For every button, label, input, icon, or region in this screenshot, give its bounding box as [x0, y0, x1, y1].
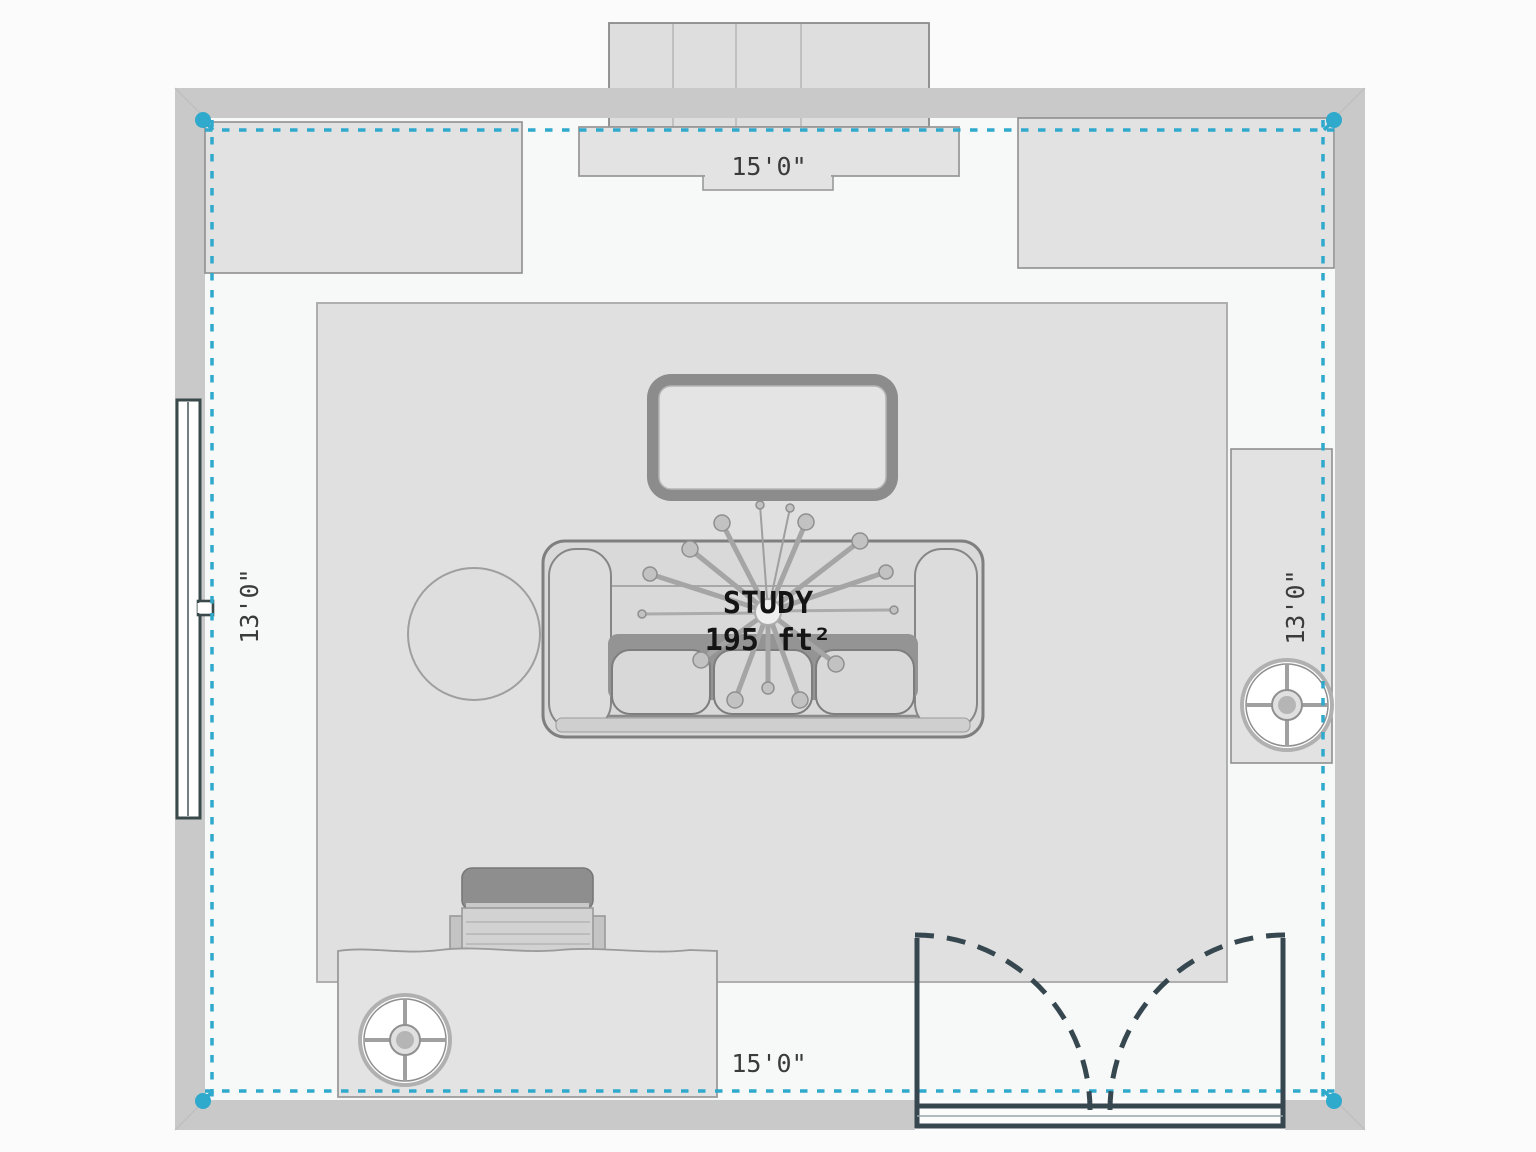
cabinet-top-right-icon[interactable]	[1018, 118, 1334, 268]
office-chair-icon[interactable]	[450, 868, 605, 952]
dimension-label-right: 13'0"	[1281, 569, 1310, 644]
corner-handle-top-right[interactable]	[1326, 112, 1342, 128]
corner-handle-bottom-left[interactable]	[195, 1093, 211, 1109]
dimension-label-top: 15'0"	[731, 152, 806, 181]
wall-bottom-left-segment[interactable]	[175, 1100, 915, 1130]
corner-handle-bottom-right[interactable]	[1326, 1093, 1342, 1109]
coffee-table-icon[interactable]	[647, 374, 898, 501]
corner-handle-top-left[interactable]	[195, 112, 211, 128]
pedestal-table-right-icon[interactable]	[1242, 660, 1332, 750]
floorplan-svg: 15'0" 15'0" 13'0" 13'0" STUDY 195 ft²	[0, 0, 1536, 1152]
round-side-table-icon[interactable]	[408, 568, 540, 700]
dimension-label-bottom: 15'0"	[731, 1049, 806, 1078]
wall-right[interactable]	[1335, 88, 1365, 1130]
room-name-label: STUDY	[723, 586, 813, 621]
dimension-label-left: 13'0"	[235, 568, 264, 643]
pedestal-table-desk-icon[interactable]	[360, 995, 450, 1085]
room-area-label: 195 ft²	[705, 623, 831, 658]
wall-bottom-right-segment[interactable]	[1285, 1100, 1365, 1130]
floorplan-canvas: 15'0" 15'0" 13'0" 13'0" STUDY 195 ft²	[0, 0, 1536, 1152]
wall-top[interactable]	[175, 88, 1365, 118]
cabinet-top-left-icon[interactable]	[205, 122, 522, 273]
